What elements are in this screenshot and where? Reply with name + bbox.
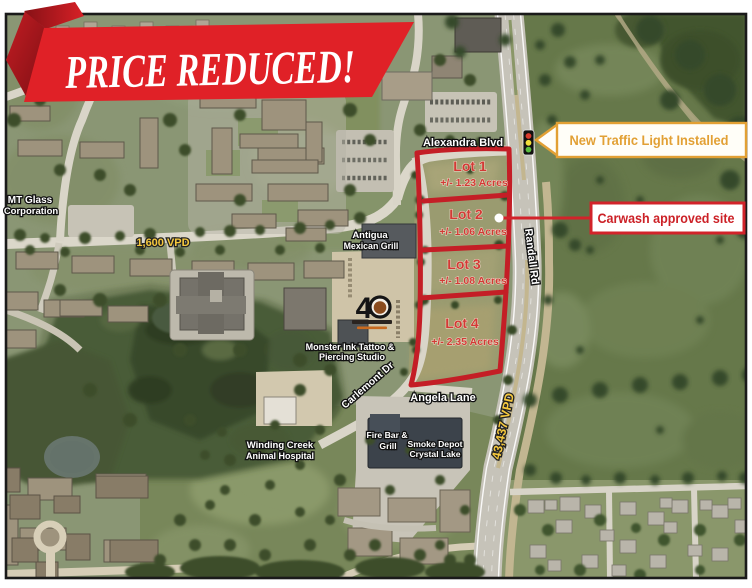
svg-text:Grill: Grill — [379, 441, 396, 451]
svg-text:Crystal Lake: Crystal Lake — [409, 449, 460, 459]
svg-text:MT Glass: MT Glass — [8, 195, 53, 206]
svg-text:Antigua: Antigua — [352, 230, 388, 241]
svg-text:Alexandra Blvd: Alexandra Blvd — [423, 137, 503, 149]
svg-text:Carwash approved site: Carwash approved site — [598, 211, 735, 226]
svg-text:+/- 1.06 Acres: +/- 1.06 Acres — [439, 226, 507, 238]
svg-text:Winding Creek: Winding Creek — [247, 440, 314, 451]
svg-text:Lot 1: Lot 1 — [453, 158, 487, 174]
svg-text:Lot 2: Lot 2 — [449, 206, 483, 222]
svg-text:+/- 1.08 Acres: +/- 1.08 Acres — [439, 275, 507, 287]
svg-text:PRICE REDUCED!: PRICE REDUCED! — [64, 41, 356, 99]
svg-text:Monster Ink Tattoo &: Monster Ink Tattoo & — [306, 342, 395, 352]
svg-text:Smoke Depot: Smoke Depot — [408, 439, 463, 449]
svg-text:+/- 1.23 Acres: +/- 1.23 Acres — [440, 177, 508, 189]
svg-text:Piercing Studio: Piercing Studio — [319, 352, 386, 362]
svg-text:Mexican Grill: Mexican Grill — [344, 241, 399, 251]
svg-text:Corporation: Corporation — [4, 206, 59, 217]
svg-text:Lot 4: Lot 4 — [445, 315, 479, 331]
svg-text:New Traffic Light Installed: New Traffic Light Installed — [570, 132, 729, 148]
svg-text:1,600 VPD: 1,600 VPD — [136, 237, 189, 249]
svg-text:+/- 2.35 Acres: +/- 2.35 Acres — [431, 336, 499, 348]
svg-text:Angela Lane: Angela Lane — [410, 392, 475, 404]
svg-text:Fire Bar &: Fire Bar & — [366, 430, 407, 440]
svg-text:Animal Hospital: Animal Hospital — [246, 451, 314, 461]
svg-text:Lot 3: Lot 3 — [447, 256, 481, 272]
